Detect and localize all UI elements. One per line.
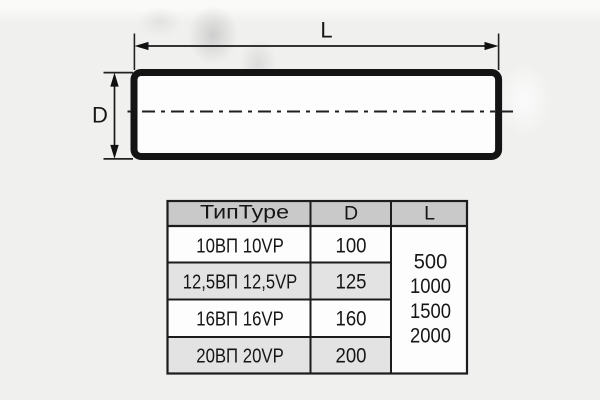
svg-text:200: 200	[336, 344, 367, 368]
svg-text:100: 100	[336, 233, 367, 257]
svg-text:10ВП 10VP: 10ВП 10VP	[196, 235, 284, 257]
svg-text:500: 500	[414, 251, 448, 274]
svg-text:1500: 1500	[410, 300, 451, 323]
svg-text:D: D	[344, 203, 358, 225]
svg-text:1000: 1000	[410, 275, 451, 298]
svg-text:125: 125	[336, 270, 367, 294]
svg-text:16ВП 16VP: 16ВП 16VP	[196, 308, 284, 330]
svg-text:D: D	[92, 103, 108, 128]
svg-text:20ВП 20VP: 20ВП 20VP	[196, 346, 284, 368]
svg-text:L: L	[424, 203, 435, 225]
svg-text:2000: 2000	[410, 324, 451, 347]
svg-text:12,5ВП 12,5VP: 12,5ВП 12,5VP	[183, 271, 298, 293]
svg-text:L: L	[320, 18, 332, 43]
svg-text:160: 160	[336, 307, 367, 331]
svg-text:ТипType: ТипType	[200, 202, 289, 224]
